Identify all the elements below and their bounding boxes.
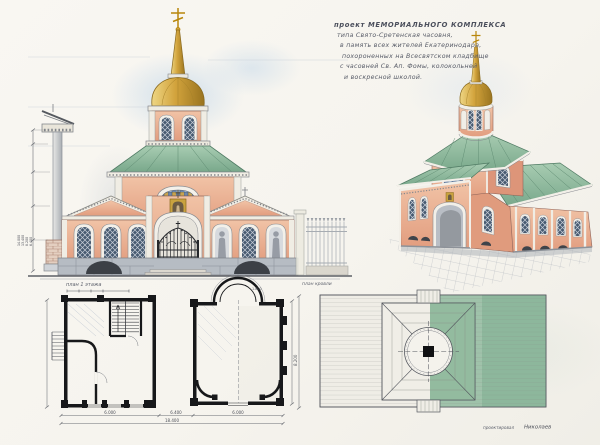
lattice-window [498,168,508,186]
stair [110,300,141,346]
drum [146,111,210,146]
dim-value: 6.400 [29,237,33,246]
lattice-window [104,227,118,258]
elevation-view [28,8,352,279]
wing-left [62,220,160,262]
drum-window [162,118,172,141]
lattice-window [77,227,91,258]
column-dimension-values: 14.000 13.400 8.200 6.400 [17,235,33,246]
door-swing [96,372,107,383]
exterior-stair [52,332,64,360]
lattice-window [131,227,145,258]
column-shaft [53,132,62,244]
entrance-step [145,272,211,275]
title-line: типа Свято-Сретенская часовня, [334,31,486,42]
floor-plan-label: план 1 этажа [66,282,101,288]
hall-depth-dim: 8.200 [293,354,298,366]
saint-figure [272,238,280,259]
stone-base [58,258,298,275]
pencil-hatch [198,306,236,360]
wing-right [196,220,294,262]
dome-cornice [148,106,208,111]
lattice-window [484,209,492,232]
column-capital [42,124,73,132]
lattice-window [558,218,565,235]
title-line: и воскресной школой. [334,73,486,84]
lattice-window [522,216,529,233]
saint-figure [218,238,226,259]
signature-role: проектировал [483,425,514,430]
pencil-hatch [68,304,104,336]
floor-plan-1: план 1 этажа [45,282,156,409]
iron-fence [294,210,348,275]
signature-name: Николаев [524,425,551,431]
orthodox-cross-finial [171,8,185,32]
drum-arcade [461,110,490,131]
tent-roof [107,146,249,177]
drawing-sheet: 14.000 13.400 8.200 6.400 [0,0,600,445]
lattice-window [422,198,427,218]
door-swing [128,336,138,346]
roof-plan-label: план кровли [302,282,332,287]
title-block: проект МЕМОРИАЛЬНОГО КОМПЛЕКСА типа Свят… [334,20,486,84]
dim-value: 6.000 [104,410,116,415]
signature-line: проектировал Николаев [483,425,551,431]
title-line: в память всех жителей Екатеринодара, [334,41,486,52]
fence-pier [296,214,304,275]
dim-total-value: 18.400 [165,418,179,423]
column-roof [42,111,74,124]
dim-value: 6.400 [170,410,182,415]
plan-dim-line-vertical [45,299,49,409]
plan-dim-line-vertical [290,295,301,410]
passage-inner-arch [440,210,461,247]
lattice-window [540,217,547,234]
fence-base [306,266,348,275]
apse-dim: 1.800 [252,287,262,291]
floor-plan-2: 1.800 8.200 [190,275,301,409]
scale-bar [67,290,129,293]
spire [171,30,185,76]
drum-window [185,118,195,141]
gatehouse-front [400,181,470,248]
lattice-window [410,200,415,220]
dim-value: 6.000 [232,410,244,415]
small-cross [242,187,248,196]
lattice-window [575,221,581,237]
roof-plan: план кровли [302,282,546,412]
stair-direction-arrow [116,305,120,332]
lattice-window [242,227,256,258]
spire-base [423,346,434,357]
title-line: с часовней Св. Ап. Фомы, колокольней [334,62,486,73]
architectural-drawing-canvas: 14.000 13.400 8.200 6.400 [0,0,600,445]
title-line: похороненных на Всесвятском кладбище [334,52,486,63]
curved-partition [64,341,107,404]
entrance-step [150,270,206,273]
title-line: проект МЕМОРИАЛЬНОГО КОМПЛЕКСА [334,20,486,31]
nave-side-wall [508,206,592,252]
plan-dimension-chain: 6.000 6.400 6.000 18.400 [60,410,285,425]
